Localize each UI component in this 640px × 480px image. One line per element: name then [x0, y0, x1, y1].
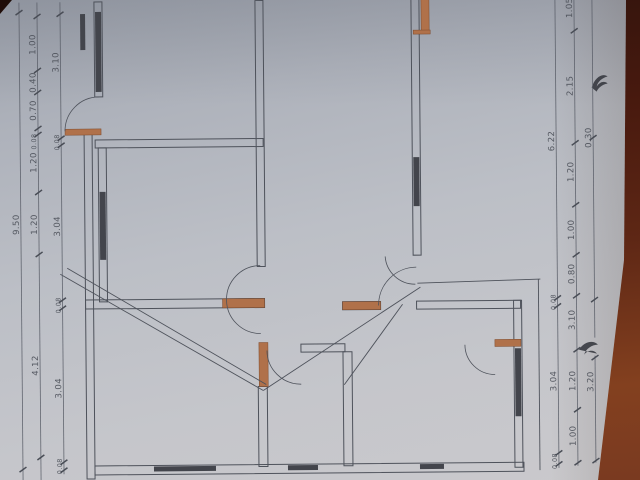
dimension-label: 2.15: [566, 75, 576, 96]
dimension-label: 0.08: [53, 134, 61, 150]
dimension-chain-line: [19, 3, 23, 480]
dimension-label: 3.10: [568, 309, 578, 330]
wall-segment: [411, 0, 421, 255]
dimension-label: 0.08: [56, 458, 64, 474]
dimension-label: 1.20: [29, 152, 39, 173]
dimension-label: 4.12: [31, 355, 41, 376]
window-glazing: [413, 157, 419, 206]
dimension-label: 1.00: [567, 219, 577, 240]
door-swing-arc: [267, 350, 301, 384]
roof-diagonal-line: [67, 266, 266, 386]
roof-diagonal-line: [262, 287, 421, 390]
highlight-wall-segment: [259, 342, 268, 386]
dimension-label: 1.20: [566, 161, 576, 182]
highlight-wall-segment: [343, 301, 381, 309]
dimension-label: 1.20: [568, 370, 578, 391]
outline-line: [417, 279, 540, 283]
wall-segment: [417, 300, 521, 309]
dimension-chain-line: [555, 0, 559, 468]
dimension-label: 0.40: [29, 72, 39, 93]
window-glazing: [100, 192, 107, 260]
wall-segment: [95, 138, 263, 147]
dimension-label: 1.20: [30, 214, 40, 235]
dimension-label: 6.22: [547, 131, 557, 152]
window-glazing: [95, 12, 102, 92]
door-swing-arc: [378, 267, 416, 305]
dimension-label: 3.10: [51, 52, 61, 73]
window-glazing: [288, 465, 318, 470]
door-swing-arc: [465, 344, 495, 374]
highlight-wall-segment: [413, 30, 430, 34]
dimension-label: 0.08: [551, 453, 559, 469]
photo-of-floor-plan: 9.501.000.400.700.081.201.204.123.100.08…: [0, 0, 640, 480]
highlight-wall-segment: [65, 129, 101, 135]
wall-segment: [343, 352, 353, 466]
dimension-label: 0.08: [549, 294, 557, 310]
dimension-chain-line: [592, 0, 595, 338]
dimension-label: 0.30: [584, 127, 594, 148]
dimension-label: 0.70: [29, 100, 39, 121]
highlight-wall-segment: [421, 0, 429, 32]
outline-line: [538, 279, 540, 470]
window-glazing: [420, 464, 444, 469]
dimension-label: 9.50: [12, 214, 22, 235]
highlight-wall-segment: [223, 298, 265, 307]
roof-diagonal-line: [60, 273, 263, 393]
dimension-label: 3.04: [549, 371, 559, 392]
window-glazing: [515, 348, 522, 416]
dimension-label: 1.05: [565, 0, 575, 18]
plan-layer: 9.501.000.400.700.081.201.204.123.100.08…: [10, 0, 611, 480]
dimension-label: 3.04: [54, 378, 64, 399]
window-glazing: [154, 466, 216, 472]
dimension-label: 0.80: [567, 263, 577, 284]
dimension-label: 3.04: [53, 216, 63, 237]
ink-mark: [579, 342, 598, 355]
dimension-label: 3.20: [586, 371, 596, 392]
roof-diagonal-line: [344, 304, 404, 385]
wall-segment: [258, 386, 268, 466]
window-glazing: [80, 14, 85, 50]
door-swing-arc: [65, 97, 99, 131]
highlight-wall-segment: [495, 339, 521, 346]
wall-segment: [255, 0, 265, 266]
dimension-label: 0.08: [30, 133, 38, 149]
ink-mark: [592, 75, 608, 92]
floor-plan-svg: 9.501.000.400.700.081.201.204.123.100.08…: [0, 0, 640, 480]
dimension-label: 1.00: [569, 425, 579, 446]
dimension-label: 1.00: [28, 34, 38, 55]
dimension-label: 0.08: [54, 297, 62, 313]
